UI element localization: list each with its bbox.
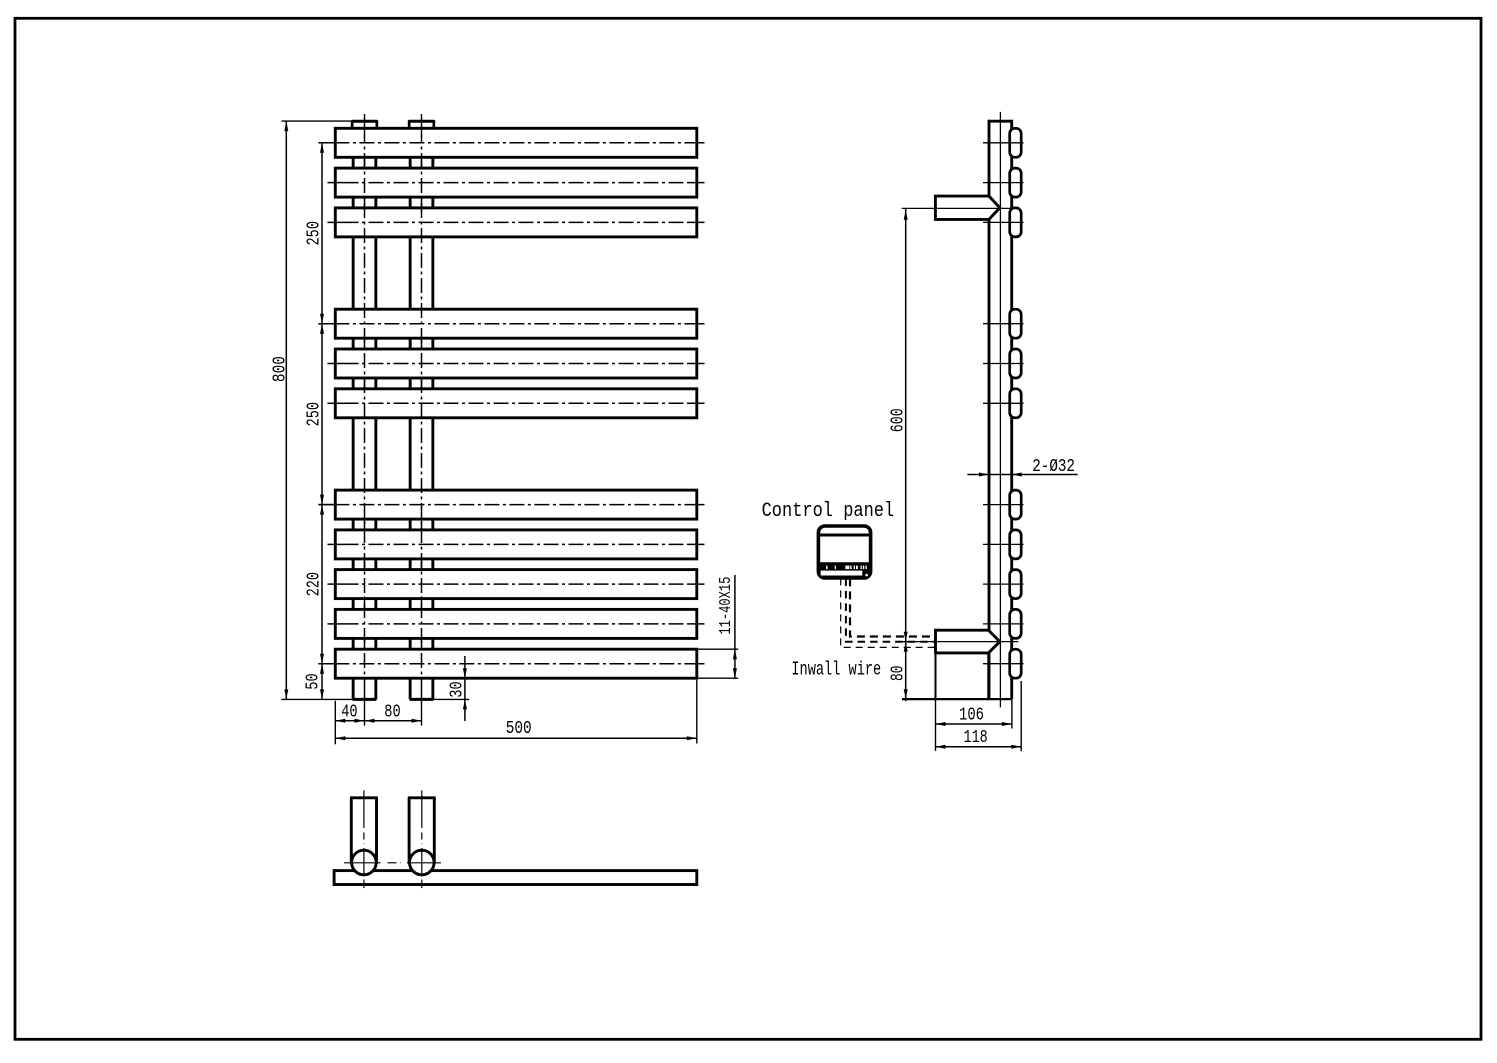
svg-text:30: 30 [448,681,468,697]
svg-text:220: 220 [304,572,324,597]
svg-text:50: 50 [304,673,324,689]
svg-text:11-40X15: 11-40X15 [717,577,736,635]
svg-text:80: 80 [888,666,908,682]
svg-text:800: 800 [270,356,290,382]
svg-text:500: 500 [506,719,532,739]
svg-text:Inwall wire: Inwall wire [791,659,881,681]
svg-text:250: 250 [304,402,324,427]
svg-text:106: 106 [959,706,984,726]
svg-text:2-Ø32: 2-Ø32 [1032,457,1075,477]
svg-text:118: 118 [964,728,988,748]
svg-text:600: 600 [888,408,908,432]
svg-text:40: 40 [341,702,357,722]
svg-text:250: 250 [304,221,324,246]
svg-text:Control panel: Control panel [762,500,895,523]
svg-text:80: 80 [384,702,400,722]
